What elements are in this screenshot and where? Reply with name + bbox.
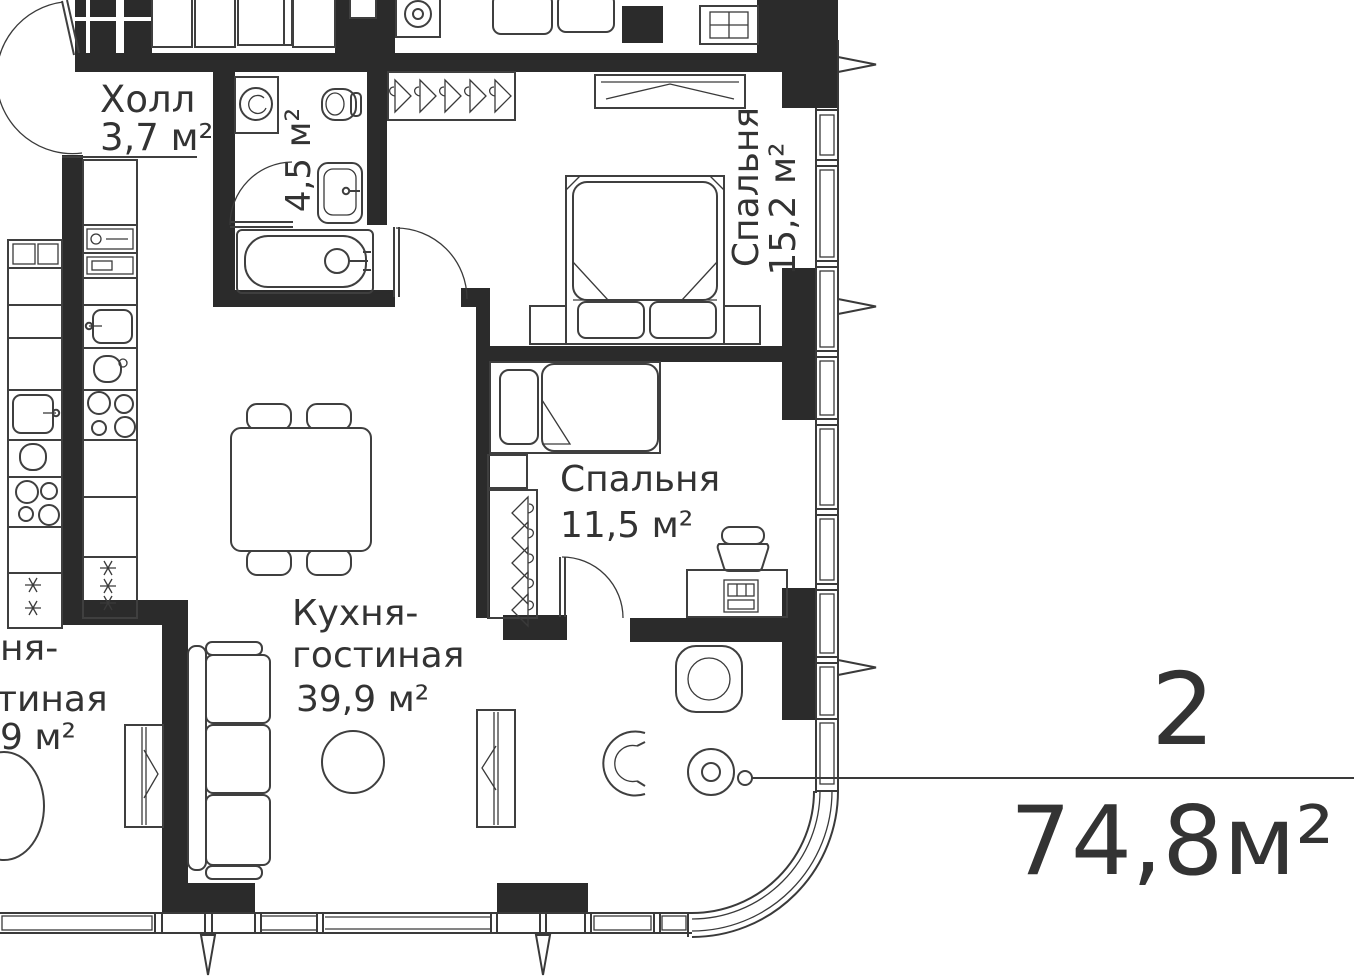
closet-unit — [558, 0, 614, 32]
closet-hangers — [488, 490, 537, 626]
arrow-right-2 — [838, 299, 876, 314]
unit-total-area: 74,8м² — [1010, 787, 1334, 897]
cabinet — [195, 0, 235, 47]
floor-plan: Холл 3,7 м² 4,5 м² Спальня 15,2 м² Спаль… — [0, 0, 1354, 980]
shaft-notch — [350, 0, 376, 18]
double-bed — [566, 176, 724, 344]
single-bed — [490, 362, 660, 453]
window-transoms-right — [816, 110, 838, 791]
bedroom-main-door — [394, 227, 467, 299]
wall-party-left — [62, 155, 83, 612]
wall-step — [62, 600, 168, 625]
wall-top-block-2 — [622, 6, 663, 43]
wall-pier-a — [782, 40, 838, 108]
cabinet — [293, 0, 335, 47]
separator — [116, 0, 124, 53]
separator — [75, 17, 152, 21]
dining-set — [231, 404, 371, 575]
hall-area: 3,7 м² — [100, 116, 213, 159]
kitchen-label-2: гостиная — [292, 635, 464, 676]
chair — [307, 404, 351, 430]
unit-badge: 2 74,8м² — [752, 651, 1354, 897]
bedroom-main-area: 15,2 м² — [763, 142, 804, 275]
hall-wardrobe — [388, 72, 515, 120]
wall-bath-left — [213, 53, 235, 307]
oven — [87, 229, 133, 249]
entrance-door — [0, 0, 82, 154]
wall-bedroom2-bottom-2 — [630, 618, 790, 642]
bedroom-second-area: 11,5 м² — [560, 505, 693, 546]
bedroom-second-label: Спальня — [560, 459, 720, 500]
kitchen-sink — [86, 310, 132, 343]
wall-bath-right — [367, 53, 387, 225]
sofa — [188, 642, 270, 879]
nightstand-left — [530, 306, 566, 344]
dining-table — [231, 428, 371, 551]
kitchen-column — [83, 160, 137, 618]
neighbor-wardrobe — [125, 725, 163, 827]
ac-unit — [700, 6, 758, 44]
arrow-down-2 — [536, 935, 550, 975]
wall-lower-left — [162, 600, 188, 913]
fridge-snowflakes — [100, 561, 116, 610]
neighbor-fridge-snowflakes — [25, 578, 41, 615]
neighbor-cooktop — [16, 481, 59, 525]
arrow-right-3 — [838, 660, 876, 675]
neighbor-kettle — [20, 444, 46, 470]
neighbor-kitchen-column — [8, 240, 62, 628]
hall-label: Холл — [100, 78, 195, 121]
wall-top — [75, 53, 838, 72]
tv-console — [595, 75, 745, 108]
separator — [86, 0, 90, 53]
neighbor-label-fragment-3: 9 м² — [0, 717, 76, 758]
washing-machine — [235, 77, 278, 133]
wall-details — [75, 0, 376, 53]
wall-between-bedrooms — [486, 346, 790, 362]
bedroom-main-label: Спальня — [726, 107, 767, 267]
bathroom-sink — [318, 163, 362, 223]
window-glazing-right — [820, 115, 834, 784]
nightstand-right — [724, 306, 760, 344]
top-strip-furniture — [152, 0, 758, 47]
wall-bottom-pier-2 — [497, 883, 588, 913]
neighbor-label-fragment-2: тиная — [0, 679, 108, 720]
plant-pot — [676, 646, 742, 712]
bedroom-second-door — [560, 557, 623, 618]
tv-wardrobe — [477, 710, 515, 827]
bathroom-area: 4,5 м² — [279, 108, 319, 212]
cooktop — [88, 392, 135, 437]
window-corner-curve — [692, 791, 838, 937]
neighbor-table — [0, 752, 44, 860]
bathtub — [237, 230, 373, 293]
kettle — [94, 356, 127, 382]
chair — [247, 404, 291, 430]
chair — [247, 549, 291, 575]
kitchen-area: 39,9 м² — [296, 679, 429, 720]
armchair — [603, 732, 645, 796]
microwave — [87, 257, 133, 274]
washing-machine-top — [396, 0, 440, 37]
nightstand — [488, 455, 527, 488]
kitchen-label-1: Кухня- — [292, 593, 418, 634]
cabinet — [152, 0, 192, 47]
desk-chair — [718, 527, 769, 571]
unit-rooms-count: 2 — [1151, 651, 1215, 768]
neighbor-label-fragment-1: ня- — [0, 628, 58, 669]
arrow-right-1 — [838, 57, 876, 72]
wall-pier-b — [782, 268, 816, 420]
coffee-table — [322, 731, 384, 793]
chair — [307, 549, 351, 575]
floor-lamp — [688, 749, 752, 795]
wall-bottom-pier-1 — [187, 883, 255, 913]
desk — [687, 570, 787, 617]
neighbor-sink — [13, 395, 59, 433]
toilet — [322, 89, 361, 120]
closet-unit — [493, 0, 552, 34]
window-glazing-bottom — [2, 916, 686, 930]
arrow-down-1 — [201, 935, 215, 975]
